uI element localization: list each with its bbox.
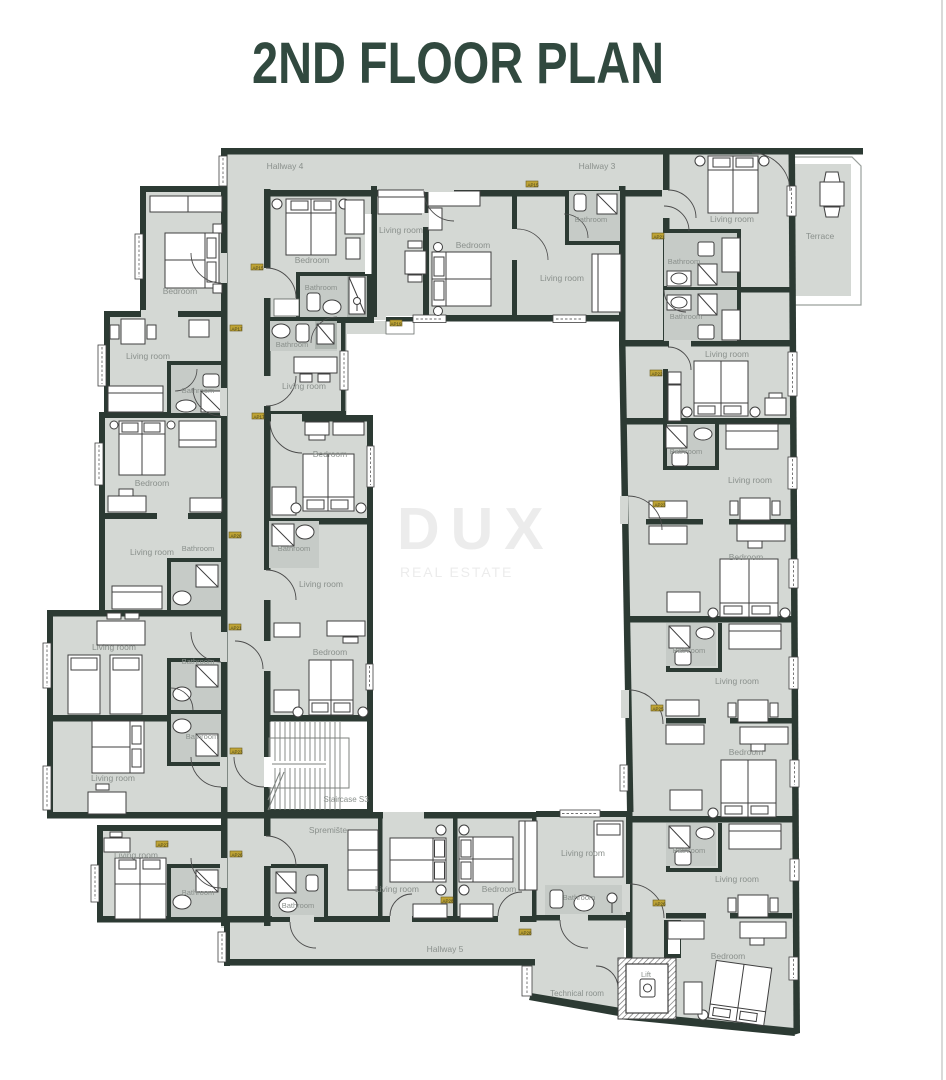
svg-text:Bedroom: Bedroom <box>711 951 746 961</box>
svg-text:Living room: Living room <box>282 381 326 391</box>
svg-text:Living room: Living room <box>715 676 759 686</box>
svg-text:Terrace: Terrace <box>806 231 835 241</box>
svg-text:Bathroom: Bathroom <box>276 340 309 349</box>
svg-text:Bathroom: Bathroom <box>670 312 703 321</box>
svg-text:Bathroom: Bathroom <box>182 544 215 553</box>
svg-text:Bathroom: Bathroom <box>575 215 608 224</box>
svg-text:AP25: AP25 <box>652 707 664 712</box>
svg-text:AP19: AP19 <box>390 322 402 327</box>
svg-text:Living room: Living room <box>540 273 584 283</box>
svg-text:Living room: Living room <box>375 884 419 894</box>
svg-text:AP27: AP27 <box>157 843 169 848</box>
svg-text:AP28: AP28 <box>520 931 532 936</box>
svg-text:Spremište: Spremište <box>309 825 348 835</box>
svg-text:AP21: AP21 <box>230 626 242 631</box>
svg-text:AP17: AP17 <box>231 327 243 332</box>
svg-text:Bedroom: Bedroom <box>729 747 764 757</box>
svg-text:AP28: AP28 <box>442 899 454 904</box>
svg-text:Bathroom: Bathroom <box>182 657 215 666</box>
svg-text:Bedroom: Bedroom <box>313 449 348 459</box>
svg-text:Bathroom: Bathroom <box>186 732 219 741</box>
svg-text:AP22: AP22 <box>651 372 663 377</box>
svg-text:Living room: Living room <box>114 850 158 860</box>
svg-text:Living room: Living room <box>710 214 754 224</box>
svg-text:Bathroom: Bathroom <box>278 544 311 553</box>
svg-text:Living room: Living room <box>715 874 759 884</box>
svg-text:Living room: Living room <box>299 579 343 589</box>
svg-text:Bathroom: Bathroom <box>563 893 596 902</box>
svg-text:AP15: AP15 <box>527 183 539 188</box>
svg-text:Bedroom: Bedroom <box>482 884 517 894</box>
svg-text:Bedroom: Bedroom <box>163 286 198 296</box>
svg-text:Living room: Living room <box>92 642 136 652</box>
svg-text:Bedroom: Bedroom <box>729 552 764 562</box>
svg-text:DUX: DUX <box>397 496 555 562</box>
svg-text:Living room: Living room <box>379 225 423 235</box>
svg-text:AP23: AP23 <box>654 503 666 508</box>
svg-text:Living room: Living room <box>126 351 170 361</box>
svg-text:Hallway 3: Hallway 3 <box>579 161 616 171</box>
svg-text:Bedroom: Bedroom <box>313 647 348 657</box>
svg-text:AP26: AP26 <box>654 902 666 907</box>
svg-text:Living room: Living room <box>561 848 605 858</box>
svg-text:AP26: AP26 <box>231 853 243 858</box>
svg-text:Bathroom: Bathroom <box>670 447 703 456</box>
svg-text:Hallway 4: Hallway 4 <box>267 161 304 171</box>
svg-text:Living room: Living room <box>728 475 772 485</box>
svg-text:Staircase S3: Staircase S3 <box>323 795 369 804</box>
svg-text:AP23: AP23 <box>231 750 243 755</box>
svg-text:Bedroom: Bedroom <box>135 478 170 488</box>
svg-text:AP17: AP17 <box>253 415 265 420</box>
svg-text:AP20: AP20 <box>230 534 242 539</box>
svg-text:Bathroom: Bathroom <box>182 386 215 395</box>
svg-text:REAL ESTATE: REAL ESTATE <box>400 564 513 580</box>
svg-text:Bathroom: Bathroom <box>305 283 338 292</box>
svg-text:Living room: Living room <box>705 349 749 359</box>
svg-text:Bathroom: Bathroom <box>673 646 706 655</box>
svg-text:Technical room: Technical room <box>550 989 604 998</box>
svg-text:Bathroom: Bathroom <box>673 846 706 855</box>
svg-text:Bedroom: Bedroom <box>295 255 330 265</box>
svg-text:Hallway 5: Hallway 5 <box>427 944 464 954</box>
svg-text:AP21: AP21 <box>653 235 665 240</box>
svg-text:Bathroom: Bathroom <box>282 901 315 910</box>
svg-text:Living room: Living room <box>91 773 135 783</box>
svg-text:Bedroom: Bedroom <box>456 240 491 250</box>
svg-text:Bathroom: Bathroom <box>668 257 701 266</box>
svg-text:2ND FLOOR PLAN: 2ND FLOOR PLAN <box>252 31 664 96</box>
svg-text:Bathroom: Bathroom <box>182 888 215 897</box>
svg-text:Living room: Living room <box>130 547 174 557</box>
svg-text:AP15: AP15 <box>252 266 264 271</box>
svg-text:Lift: Lift <box>641 970 652 979</box>
